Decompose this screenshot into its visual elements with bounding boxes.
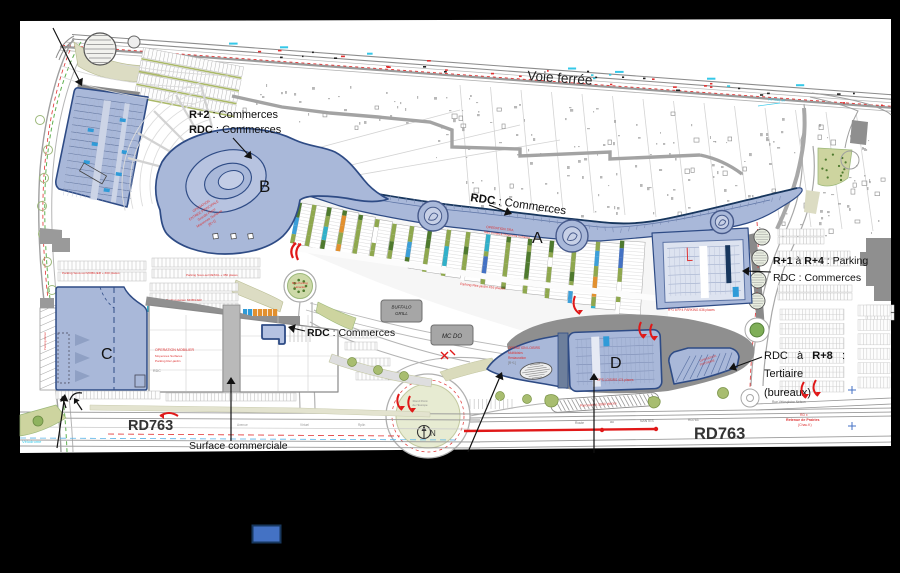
svg-text:A: A [532, 230, 543, 247]
svg-text:OPS LOISIRS 474 places: OPS LOISIRS 474 places [597, 378, 634, 382]
svg-text:RDC : Commerces: RDC : Commerces [189, 124, 282, 136]
svg-text:[R+1]: [R+1] [508, 361, 516, 365]
svg-text:Rplin: Rplin [358, 423, 365, 427]
svg-text:Avenue: Avenue [237, 423, 248, 427]
svg-text:Restauration: Restauration [508, 356, 526, 360]
svg-text:RD x: RD x [800, 413, 808, 417]
svg-text:RD763: RD763 [694, 425, 745, 443]
svg-text:Multiloisirs: Multiloisirs [508, 351, 523, 355]
svg-text:Route: Route [575, 421, 584, 425]
svg-text:Parking Aérien: Parking Aérien [43, 331, 47, 350]
svg-text:(Chau.K): (Chau.K) [798, 423, 812, 427]
svg-text:MC DO: MC DO [442, 334, 462, 340]
svg-text:NANTES: NANTES [640, 419, 654, 423]
svg-text:Parking Rez-jardin: Parking Rez-jardin [155, 359, 181, 363]
svg-text:OPERATION LOISIRS: OPERATION LOISIRS [508, 346, 540, 350]
svg-text:BUFFALO: BUFFALO [392, 305, 413, 310]
svg-text:Tertiaire: Tertiaire [764, 368, 803, 380]
svg-text:RDC : Commerces: RDC : Commerces [307, 327, 395, 339]
svg-text:C: C [101, 346, 113, 363]
svg-text:RDC à R+8 :: RDC à R+8 : [764, 350, 845, 362]
svg-text:au: au [610, 420, 614, 424]
svg-text:de l’Europe: de l’Europe [412, 403, 428, 407]
svg-text:RD763: RD763 [688, 418, 699, 422]
svg-text:RD763: RD763 [128, 418, 173, 434]
svg-text:RDC: RDC [153, 369, 161, 373]
svg-text:Parking Sous-sol MOBILIER + 30: Parking Sous-sol MOBILIER + 300 places [62, 271, 120, 275]
svg-text:Parking Sous-sol RETAIL + 35: Parking Sous-sol RETAIL + 350 places [186, 273, 238, 277]
svg-text:Retenue de Prairies: Retenue de Prairies [786, 418, 820, 422]
svg-text:R+1 à R+4 PARKING 636 places: R+1 à R+4 PARKING 636 places [668, 308, 715, 312]
svg-text:B: B [259, 177, 270, 196]
svg-text:GRILL: GRILL [395, 311, 408, 316]
svg-text:Héraclès: Héraclès [294, 285, 306, 289]
svg-text:Surface commerciale: Surface commerciale [189, 440, 288, 452]
svg-text:OPERATION MOBILIER: OPERATION MOBILIER [155, 348, 194, 352]
svg-text:Rue Vélosphère Nélson: Rue Vélosphère Nélson [772, 400, 806, 404]
svg-text:D: D [610, 355, 622, 372]
svg-text:Moyennes Surfaces: Moyennes Surfaces [155, 354, 183, 358]
svg-text:N: N [430, 429, 436, 438]
svg-text:R+1 à R+4 : Parking: R+1 à R+4 : Parking [773, 255, 868, 267]
svg-text:RDC : Commerces: RDC : Commerces [773, 272, 861, 284]
svg-text:R+2 : Commerces: R+2 : Commerces [189, 109, 278, 121]
svg-text:Vélodrome: Vélodrome [22, 439, 42, 444]
svg-text:Virtuel: Virtuel [300, 423, 309, 427]
